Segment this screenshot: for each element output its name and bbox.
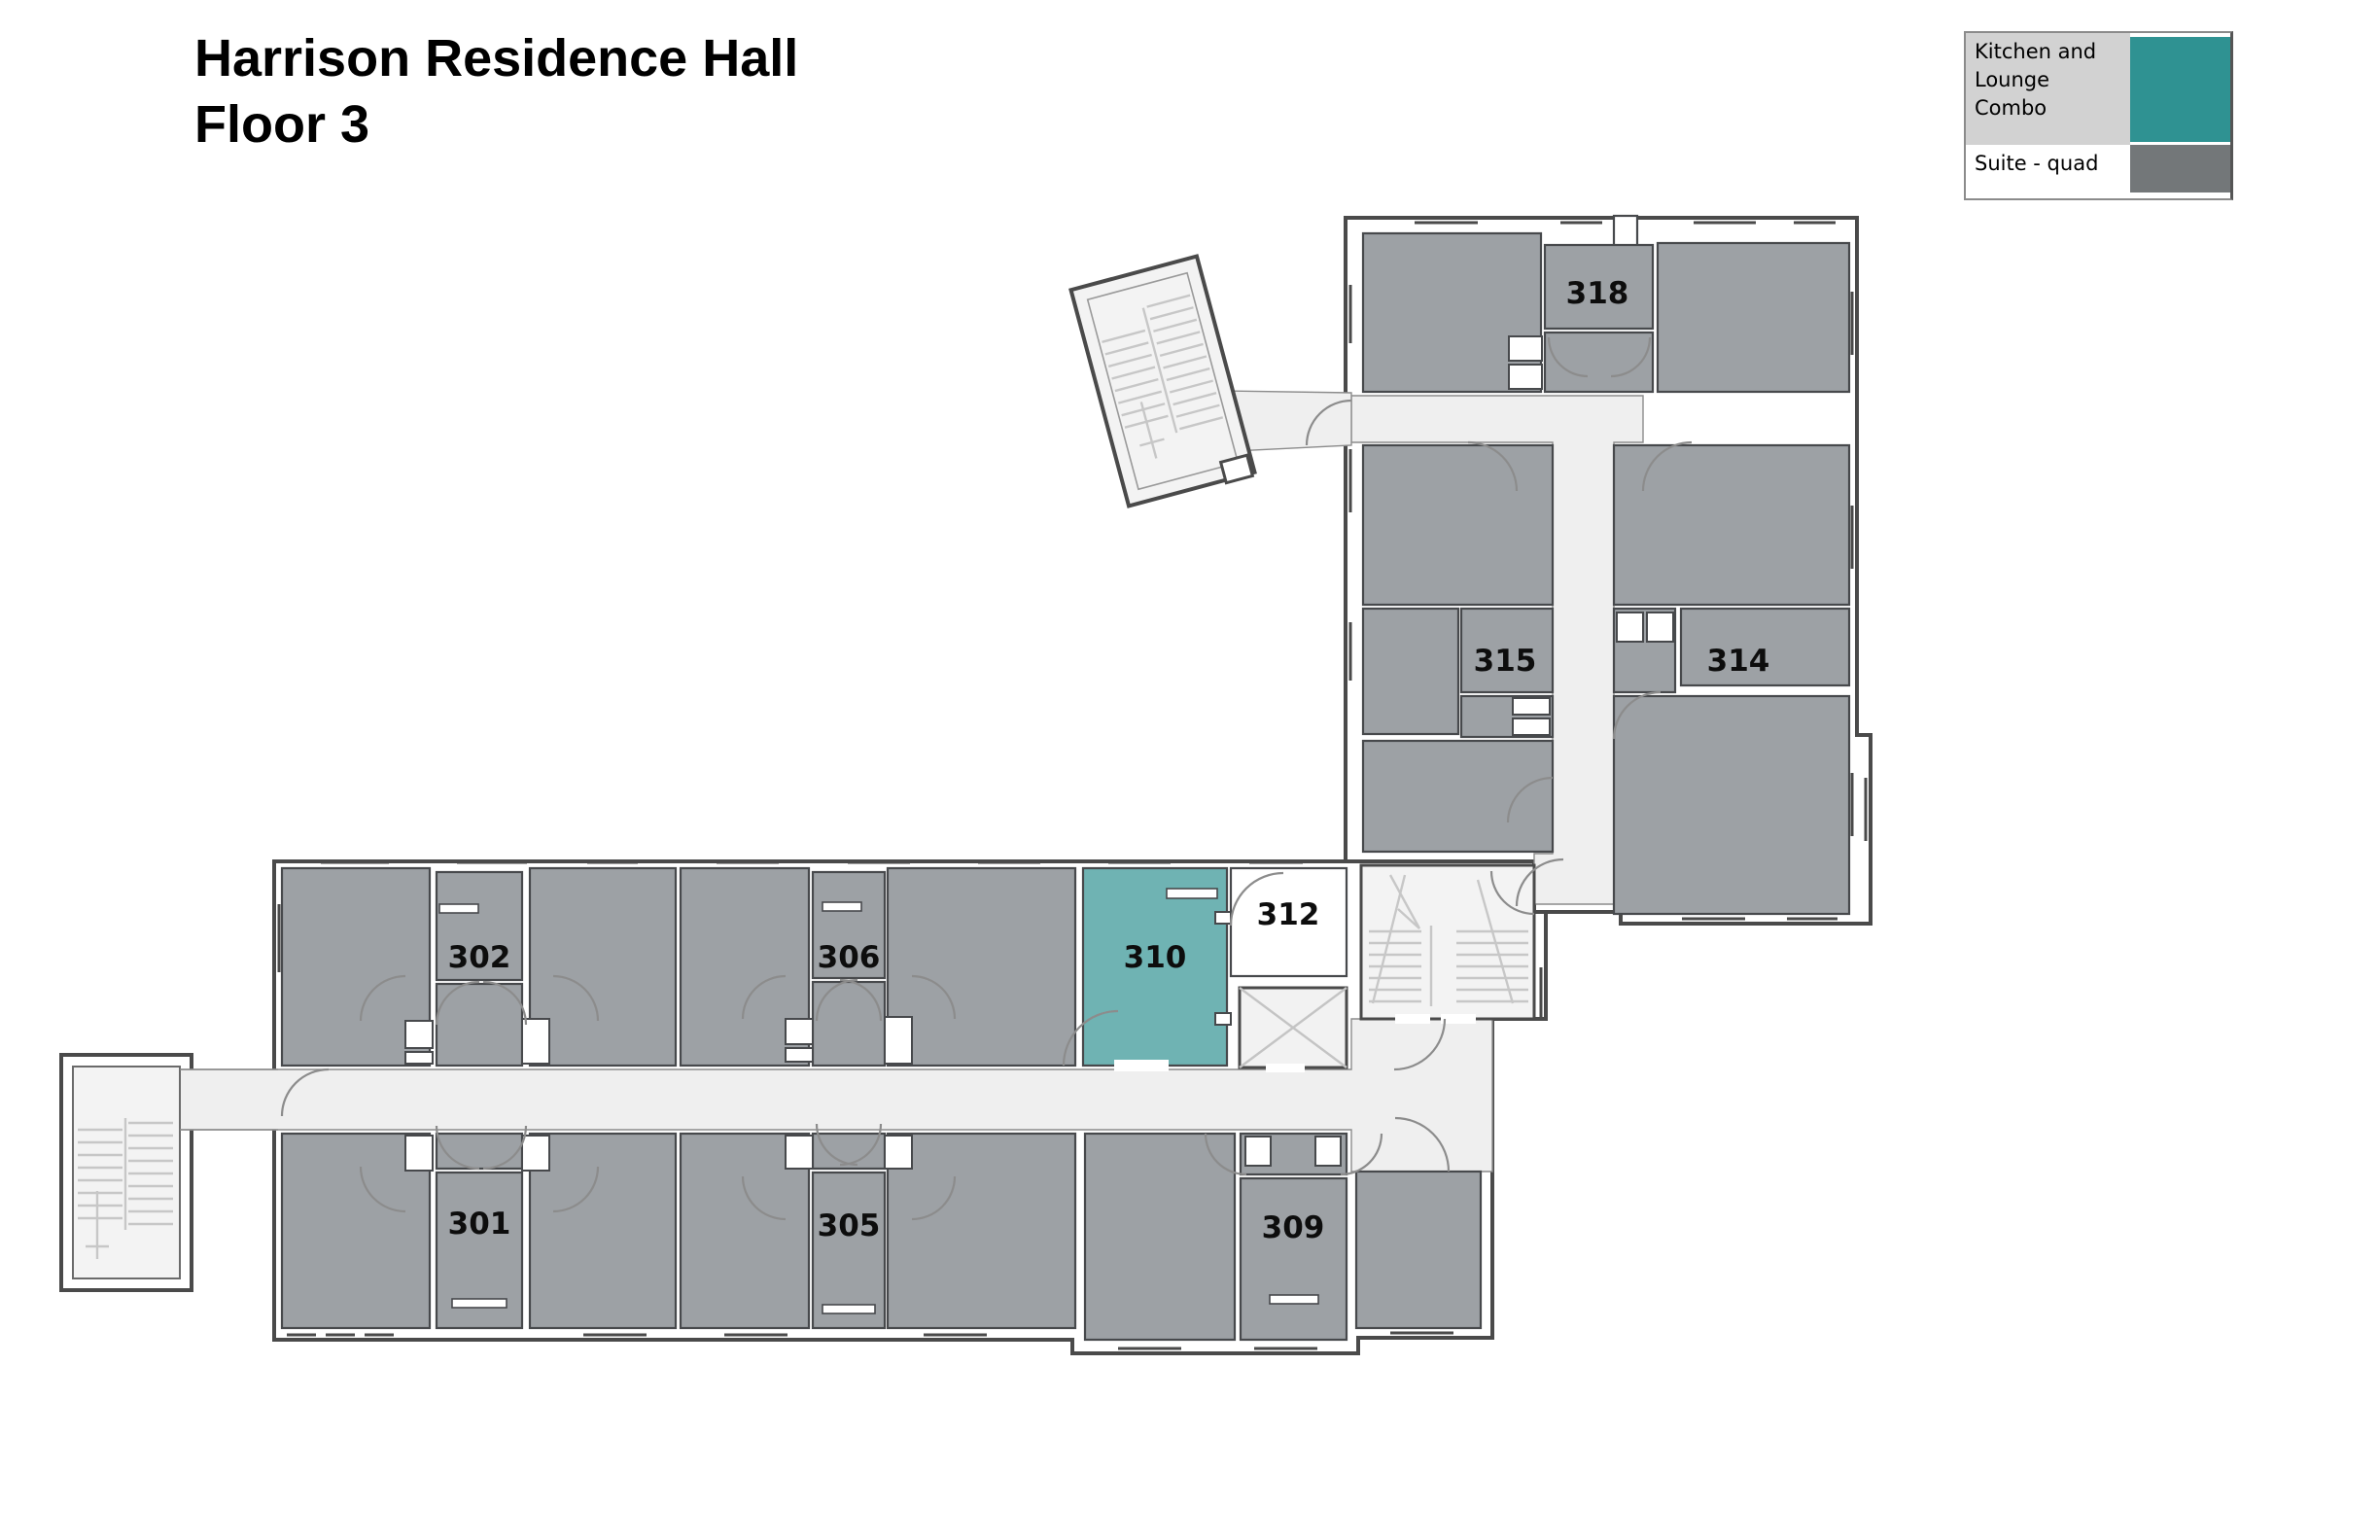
legend-label-kitchen-lounge: Kitchen and Lounge Combo — [1966, 33, 2130, 145]
shelf — [452, 1299, 507, 1308]
closet — [405, 1136, 433, 1171]
legend-row-suite-quad: Suite - quad — [1966, 145, 2230, 198]
junction-stairwell — [1361, 865, 1534, 1024]
door-gap — [1114, 1060, 1169, 1071]
closet — [786, 1019, 813, 1044]
shelf — [822, 902, 861, 911]
room-315-upper[interactable] — [1363, 445, 1553, 605]
legend-swatch-suite-quad — [2130, 145, 2230, 192]
room-315-left[interactable] — [1363, 609, 1458, 734]
room-318-right[interactable] — [1658, 243, 1849, 392]
page-title: Harrison Residence Hall Floor 3 — [194, 25, 798, 157]
room-label-315: 315 — [1474, 644, 1537, 679]
closet — [885, 1136, 912, 1169]
elevator — [1240, 988, 1347, 1072]
door-gap — [1395, 1014, 1430, 1024]
closet — [786, 1136, 813, 1169]
floor-name: Floor 3 — [194, 91, 798, 157]
room-306-right[interactable] — [888, 868, 1075, 1066]
room-label-318: 318 — [1566, 276, 1629, 311]
elevator-door-gap — [1266, 1064, 1305, 1072]
room-309-center[interactable] — [1241, 1178, 1347, 1340]
room-301-right[interactable] — [530, 1134, 676, 1328]
room-302-right[interactable] — [530, 868, 676, 1066]
room-302-vestibule[interactable] — [437, 984, 522, 1066]
shelf — [822, 1305, 875, 1313]
shelf — [1270, 1295, 1318, 1304]
room-label-302: 302 — [448, 940, 511, 975]
room-305-right[interactable] — [888, 1134, 1075, 1328]
closet — [1513, 698, 1550, 715]
closet — [1647, 612, 1673, 642]
closet — [405, 1021, 433, 1048]
building-name: Harrison Residence Hall — [194, 25, 798, 91]
room-label-314: 314 — [1707, 644, 1770, 679]
closet — [885, 1017, 912, 1064]
room-label-305: 305 — [818, 1208, 881, 1243]
legend-label-suite-quad: Suite - quad — [1966, 145, 2130, 198]
room-label-309: 309 — [1262, 1210, 1325, 1245]
shelf — [439, 904, 478, 913]
room-label-306: 306 — [818, 940, 881, 975]
closet — [405, 1052, 433, 1064]
door-notch — [1215, 912, 1231, 924]
legend: Kitchen and Lounge Combo Suite - quad — [1964, 31, 2233, 200]
legend-swatch-kitchen-lounge — [2130, 37, 2230, 142]
closet — [1509, 365, 1542, 389]
room-301-vestibule[interactable] — [437, 1134, 522, 1169]
door-gap — [1441, 1014, 1476, 1024]
closet — [786, 1048, 813, 1062]
room-label-301: 301 — [448, 1207, 511, 1242]
room-label-312: 312 — [1257, 897, 1320, 932]
closet — [1245, 1137, 1271, 1166]
room-309-left[interactable] — [1085, 1134, 1235, 1340]
floor-plan-svg: 302 306 310 312 301 305 309 318 315 314 — [0, 0, 2380, 1540]
closet — [1513, 718, 1550, 735]
room-315-lower[interactable] — [1363, 741, 1553, 852]
floorplan-page: { "title": {"line1": "Harrison Residence… — [0, 0, 2380, 1540]
angled-stairwell — [1071, 257, 1256, 509]
room-label-310: 310 — [1124, 940, 1187, 975]
door-notch — [1215, 1013, 1231, 1025]
room-309-right[interactable] — [1356, 1172, 1481, 1328]
legend-row-kitchen-lounge: Kitchen and Lounge Combo — [1966, 33, 2230, 145]
closet — [1509, 336, 1542, 361]
closet — [1315, 1137, 1341, 1166]
closet — [522, 1019, 549, 1064]
room-318-vestibule[interactable] — [1545, 332, 1653, 392]
room-314-lower[interactable] — [1614, 696, 1849, 914]
closet — [1617, 612, 1643, 642]
closet — [522, 1136, 549, 1171]
room-306-vestibule[interactable] — [813, 982, 885, 1066]
shelf — [1167, 889, 1217, 898]
